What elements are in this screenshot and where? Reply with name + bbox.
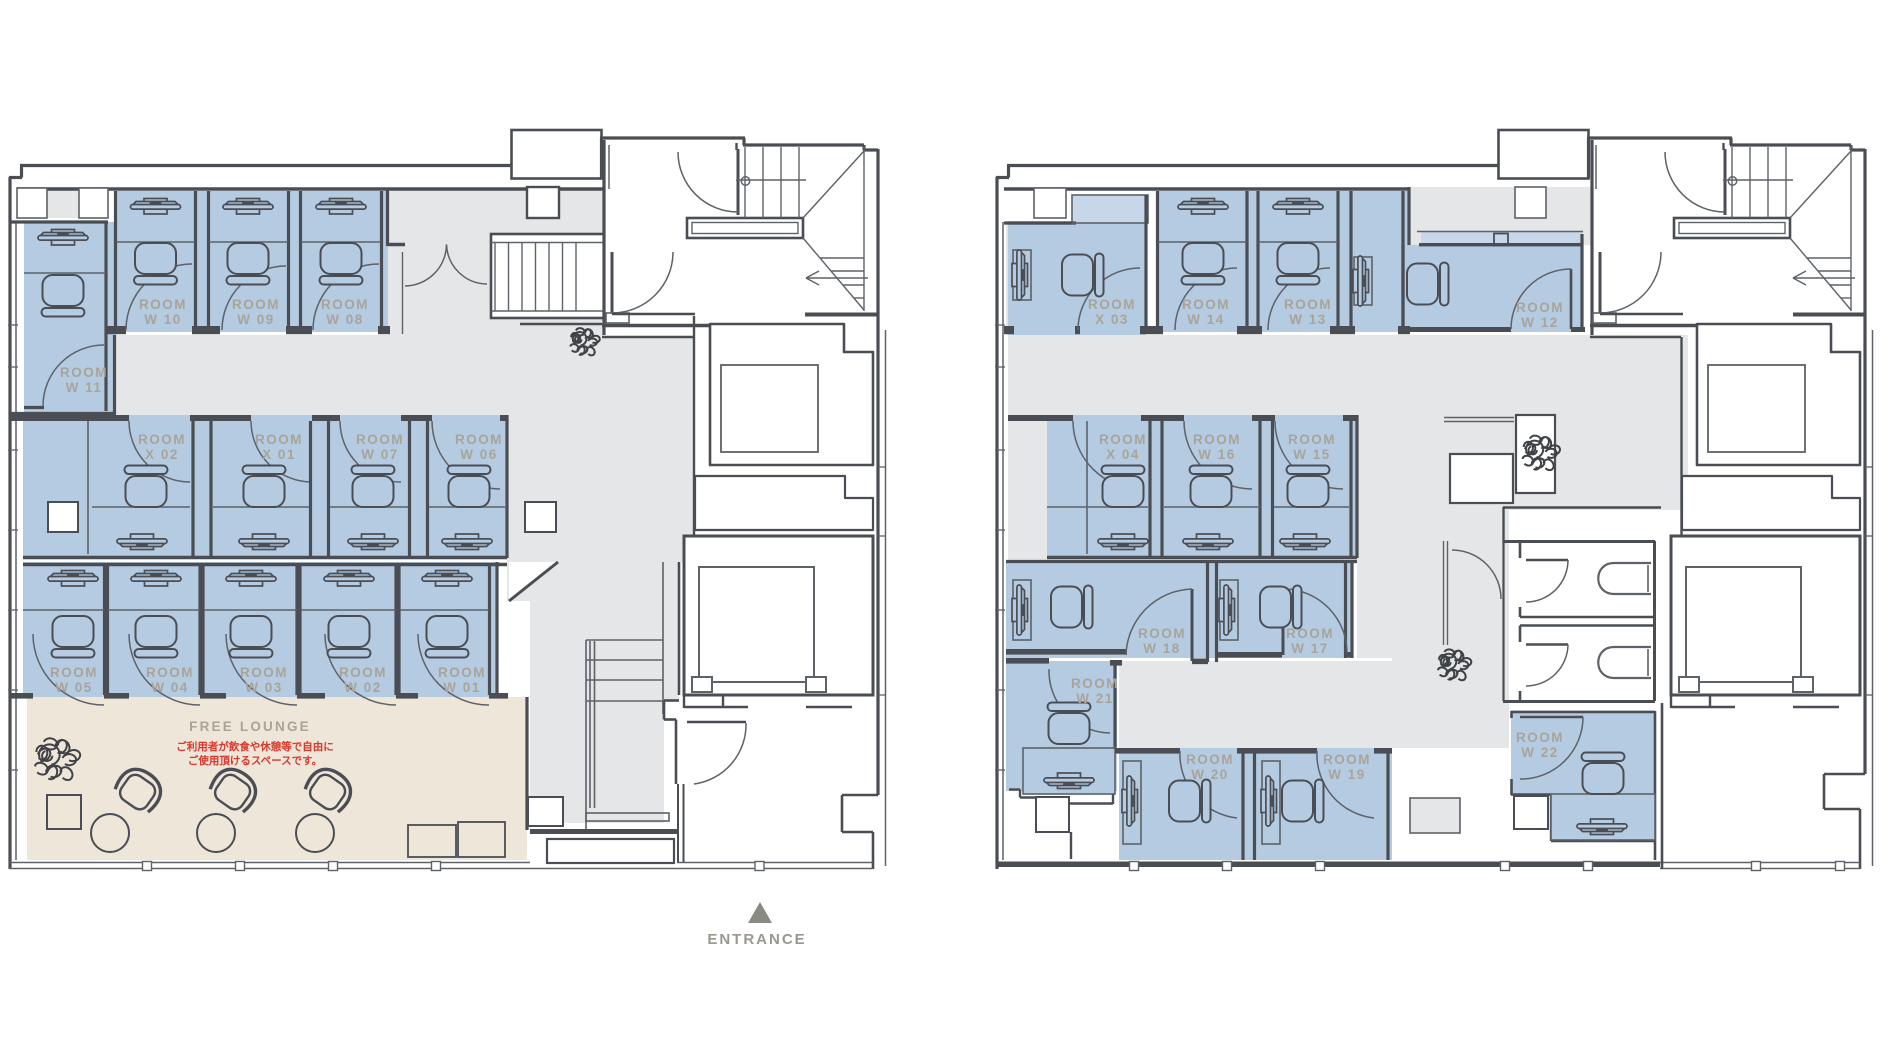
svg-text:ROOM: ROOM — [255, 432, 303, 447]
svg-text:ROOM: ROOM — [240, 665, 288, 680]
svg-text:FREE LOUNGE: FREE LOUNGE — [189, 719, 311, 734]
svg-text:W 18: W 18 — [1143, 641, 1181, 656]
svg-text:W 22: W 22 — [1521, 745, 1559, 760]
svg-text:ROOM: ROOM — [139, 297, 187, 312]
svg-text:ENTRANCE: ENTRANCE — [707, 931, 806, 948]
svg-text:W 05: W 05 — [55, 680, 93, 695]
svg-text:W 02: W 02 — [344, 680, 382, 695]
svg-text:ROOM: ROOM — [1099, 432, 1147, 447]
svg-text:W 01: W 01 — [443, 680, 481, 695]
svg-text:W 09: W 09 — [237, 312, 275, 327]
svg-text:W 20: W 20 — [1191, 767, 1229, 782]
svg-text:ROOM: ROOM — [1071, 676, 1119, 691]
svg-text:ROOM: ROOM — [356, 432, 404, 447]
svg-text:ROOM: ROOM — [1182, 297, 1230, 312]
svg-text:W 10: W 10 — [144, 312, 182, 327]
svg-text:W 04: W 04 — [151, 680, 189, 695]
svg-text:ROOM: ROOM — [232, 297, 280, 312]
svg-text:W 08: W 08 — [326, 312, 364, 327]
svg-text:W 17: W 17 — [1291, 641, 1329, 656]
svg-text:X 03: X 03 — [1095, 312, 1129, 327]
svg-text:W 13: W 13 — [1289, 312, 1327, 327]
svg-text:X 04: X 04 — [1106, 447, 1140, 462]
svg-text:ROOM: ROOM — [146, 665, 194, 680]
svg-text:W 06: W 06 — [460, 447, 498, 462]
svg-text:ROOM: ROOM — [1186, 752, 1234, 767]
svg-text:W 07: W 07 — [361, 447, 399, 462]
svg-text:ROOM: ROOM — [339, 665, 387, 680]
svg-text:ROOM: ROOM — [50, 665, 98, 680]
svg-text:ROOM: ROOM — [1516, 300, 1564, 315]
svg-text:ROOM: ROOM — [1088, 297, 1136, 312]
svg-text:W 14: W 14 — [1187, 312, 1225, 327]
svg-text:ROOM: ROOM — [438, 665, 486, 680]
svg-text:ROOM: ROOM — [455, 432, 503, 447]
svg-text:W 15: W 15 — [1293, 447, 1331, 462]
svg-text:W 03: W 03 — [245, 680, 283, 695]
svg-text:X 01: X 01 — [262, 447, 296, 462]
svg-text:W 12: W 12 — [1521, 315, 1559, 330]
svg-text:W 11: W 11 — [66, 380, 103, 395]
svg-text:ROOM: ROOM — [138, 432, 186, 447]
svg-text:W 16: W 16 — [1198, 447, 1236, 462]
svg-text:ROOM: ROOM — [60, 365, 108, 380]
svg-text:ROOM: ROOM — [1516, 730, 1564, 745]
svg-text:X 02: X 02 — [145, 447, 179, 462]
svg-text:ROOM: ROOM — [1284, 297, 1332, 312]
svg-text:W 19: W 19 — [1328, 767, 1366, 782]
svg-text:W 21: W 21 — [1076, 691, 1114, 706]
svg-text:ROOM: ROOM — [1288, 432, 1336, 447]
svg-text:ご使用頂けるスペースです。: ご使用頂けるスペースです。 — [188, 754, 322, 767]
svg-text:ROOM: ROOM — [1323, 752, 1371, 767]
svg-text:ROOM: ROOM — [1193, 432, 1241, 447]
svg-text:ROOM: ROOM — [321, 297, 369, 312]
svg-text:ROOM: ROOM — [1138, 626, 1186, 641]
svg-text:ROOM: ROOM — [1286, 626, 1334, 641]
svg-text:ご利用者が飲食や休憩等で自由に: ご利用者が飲食や休憩等で自由に — [176, 740, 334, 753]
